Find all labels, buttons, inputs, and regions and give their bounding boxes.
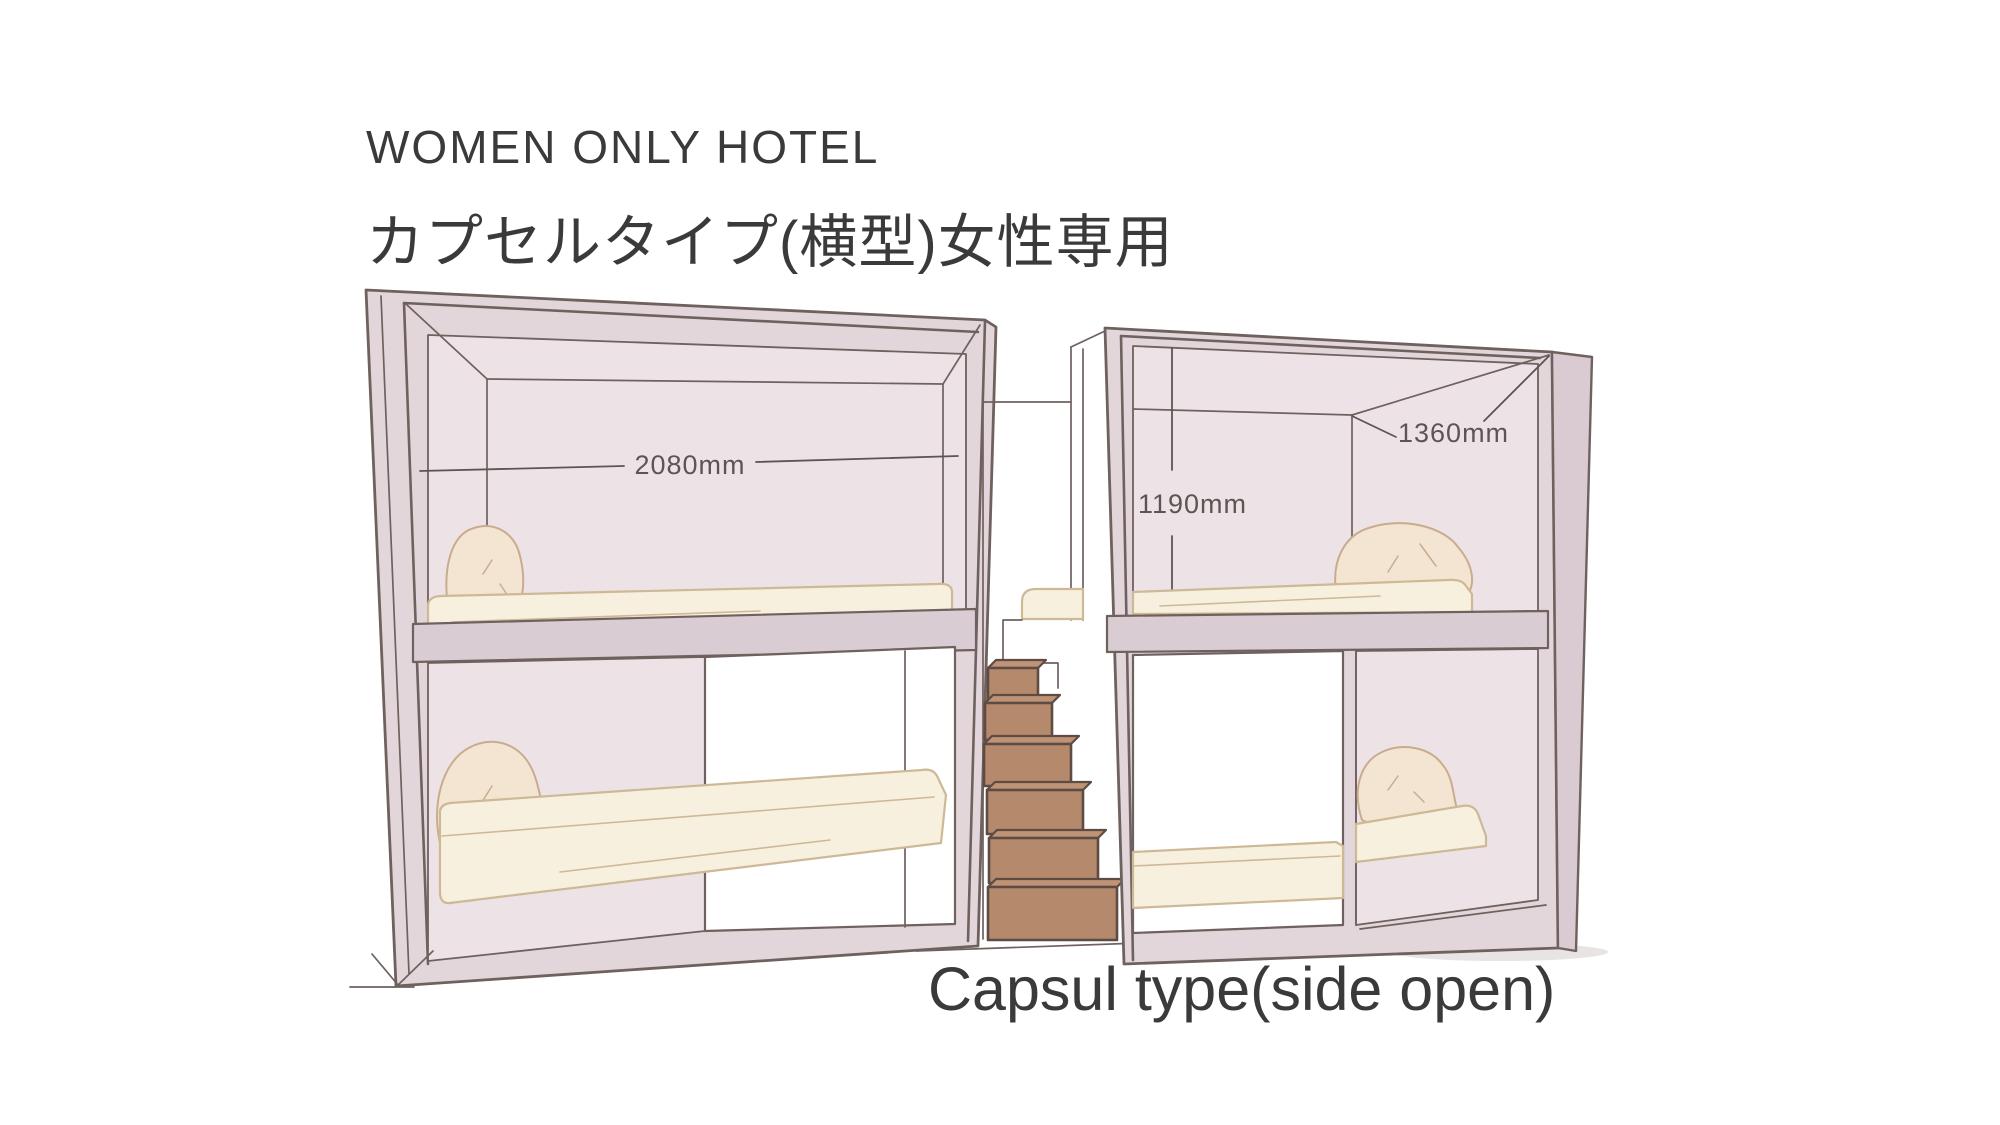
capsule-hotel-diagram: WOMEN ONLY HOTEL カプセルタイプ(横型)女性専用 2080mm … [0,0,2000,1125]
stair-step [988,887,1117,940]
lower-mattress [1133,842,1343,908]
back-capsule-mattress [1022,589,1083,619]
unit-side-panel [1552,352,1592,951]
right-capsule-unit [1105,328,1608,964]
staircase [984,660,1125,940]
width-dimension-label: 2080mm [634,450,745,480]
stair-step [984,744,1071,786]
depth-dimension-label: 1360mm [1398,418,1509,448]
illustration-canvas: WOMEN ONLY HOTEL カプセルタイプ(横型)女性専用 2080mm … [0,0,2000,1125]
stair-step [987,790,1083,834]
diagram-caption: Capsul type(side open) [928,955,1555,1023]
page-subtitle: カプセルタイプ(横型)女性専用 [366,210,1174,275]
stair-step [985,703,1052,740]
partition-top-line [1071,331,1105,347]
page-title: WOMEN ONLY HOTEL [366,121,879,173]
height-dimension-label: 1190mm [1138,489,1247,519]
bunk-divider-shelf [1107,611,1548,652]
stair-step [989,838,1098,883]
left-capsule-unit [350,290,996,987]
